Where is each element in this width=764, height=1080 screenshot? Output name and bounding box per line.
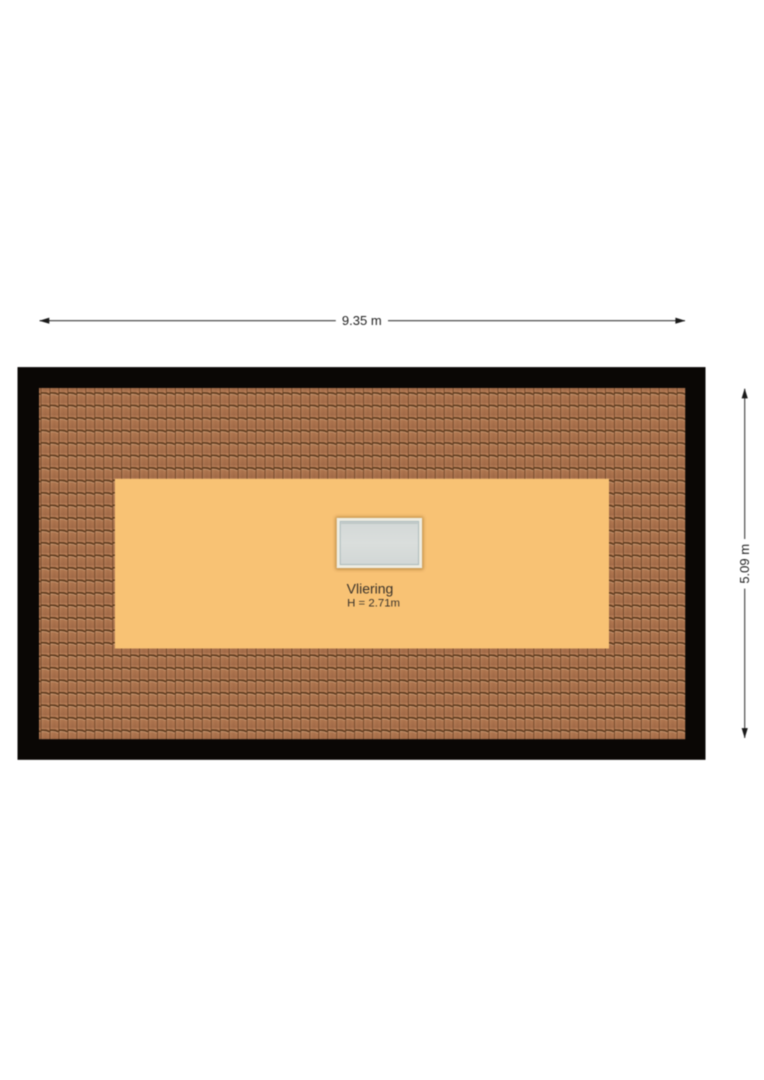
svg-text:Vliering: Vliering bbox=[347, 580, 394, 596]
svg-text:H = 2.71m: H = 2.71m bbox=[347, 598, 400, 610]
svg-text:5.09 m: 5.09 m bbox=[737, 544, 752, 584]
svg-text:9.35 m: 9.35 m bbox=[342, 313, 382, 328]
